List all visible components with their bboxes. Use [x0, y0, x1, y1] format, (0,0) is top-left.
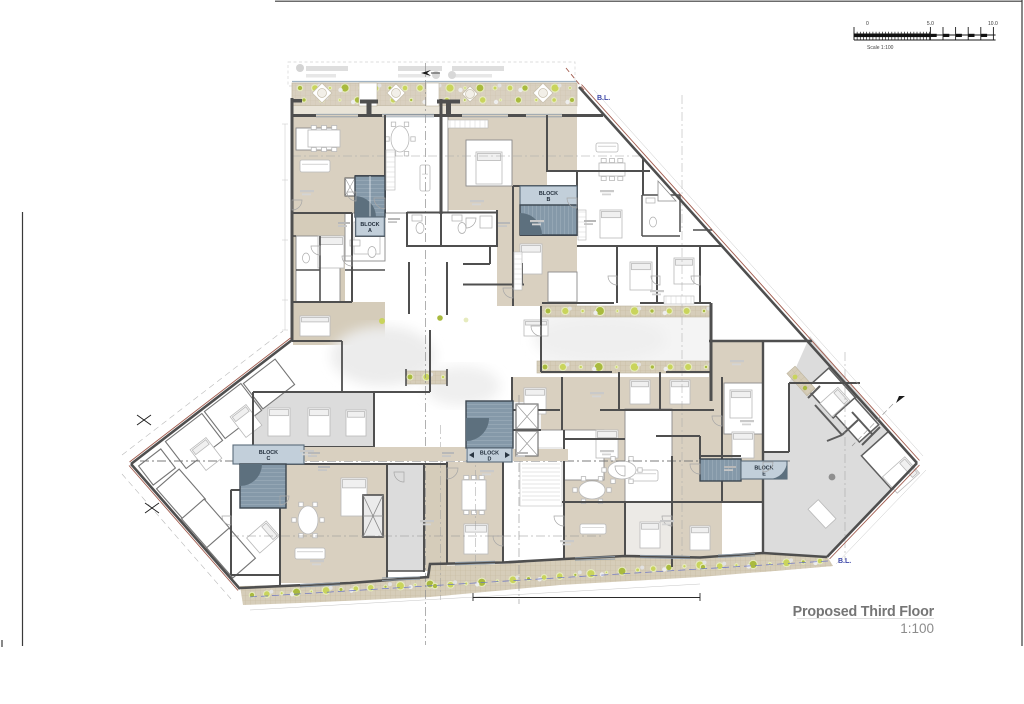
svg-text:B.L.: B.L. [597, 95, 610, 102]
svg-text:B.L.: B.L. [838, 558, 851, 565]
svg-text:A: A [368, 228, 372, 234]
svg-text:5.0: 5.0 [927, 21, 934, 27]
svg-text:0: 0 [866, 21, 869, 27]
svg-text:1:100: 1:100 [900, 621, 934, 636]
svg-text:Scale 1:100: Scale 1:100 [867, 45, 894, 51]
svg-text:B: B [547, 197, 551, 203]
svg-text:C: C [267, 456, 271, 462]
svg-text:D: D [488, 457, 492, 463]
svg-text:E: E [762, 472, 766, 478]
svg-text:Proposed Third Floor: Proposed Third Floor [793, 604, 935, 620]
svg-text:10.0: 10.0 [988, 21, 998, 27]
